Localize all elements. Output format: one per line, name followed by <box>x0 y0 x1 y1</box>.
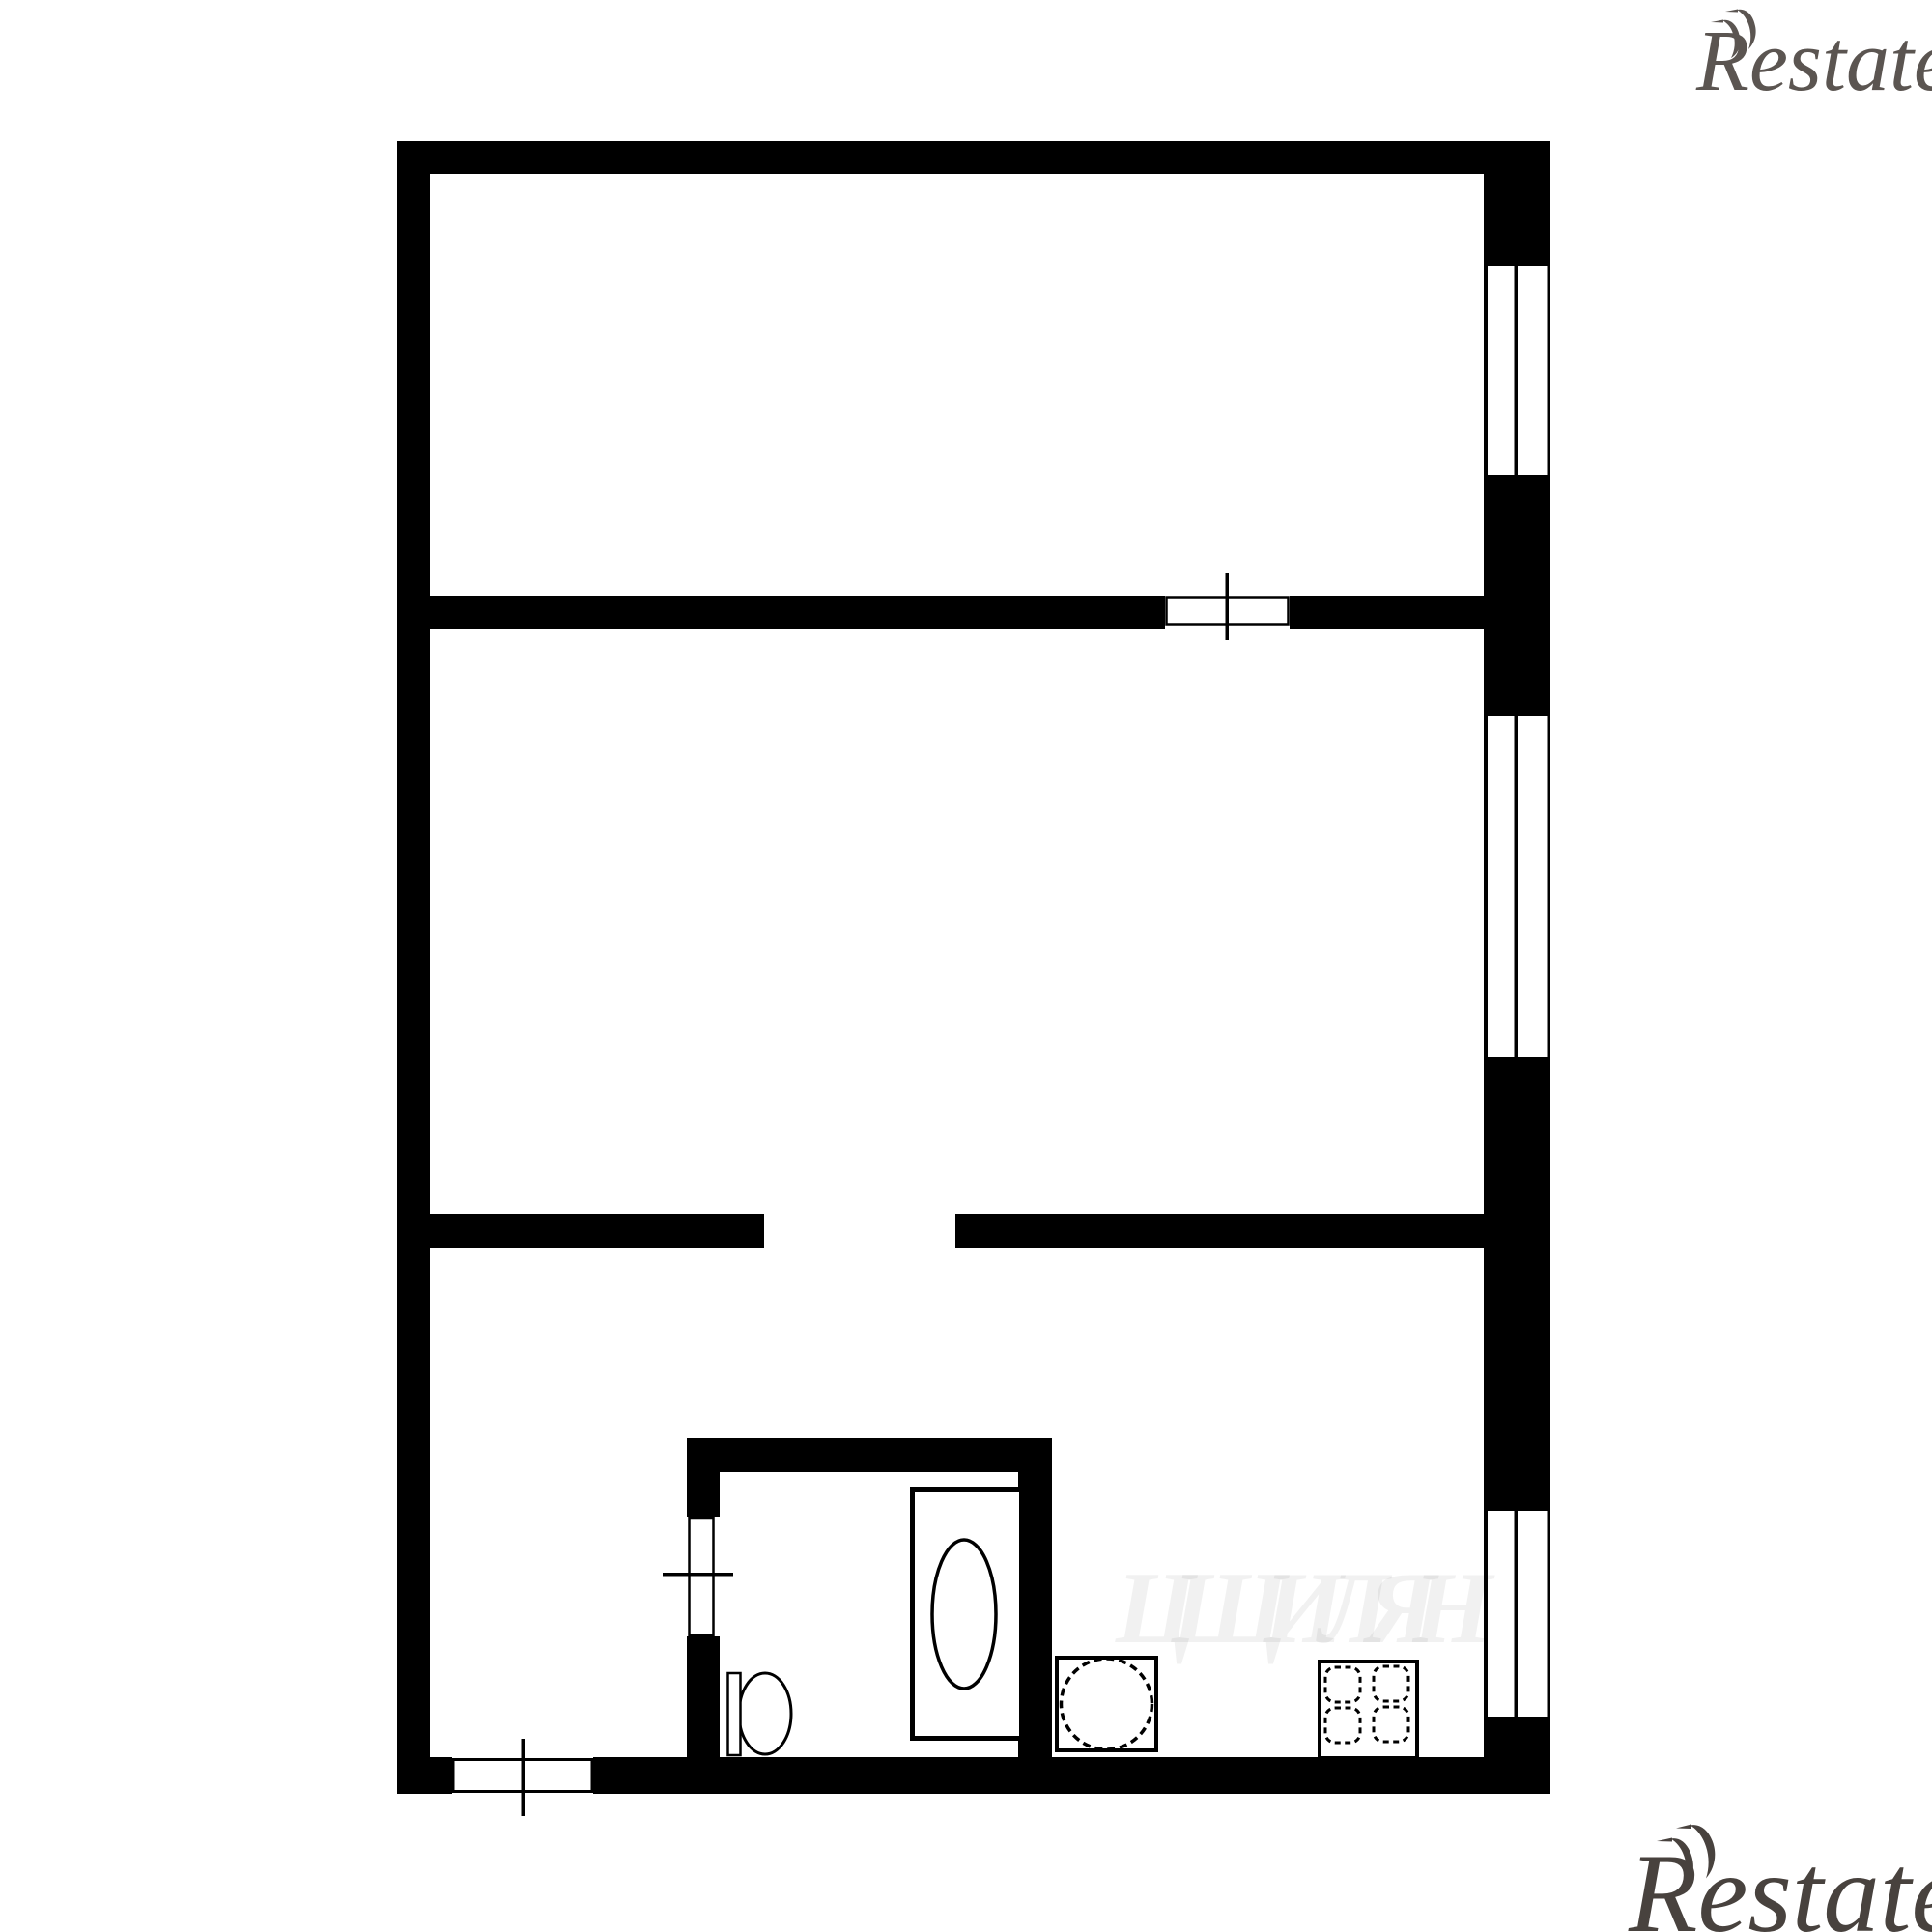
svg-text:ЦЩИЛЯН: ЦЩИЛЯН <box>1115 1551 1496 1664</box>
svg-text:Restate: Restate <box>1628 1832 1932 1932</box>
